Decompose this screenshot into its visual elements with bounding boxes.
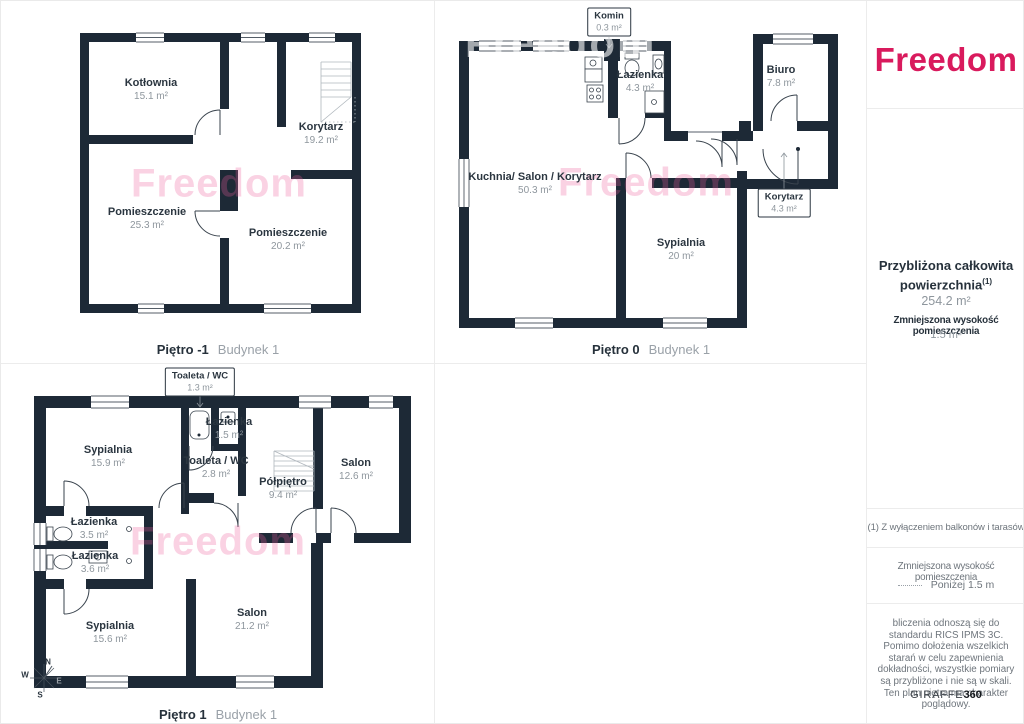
- dashed-line-sample: [898, 585, 922, 586]
- plan-caption: Piętro 1Budynek 1: [1, 706, 435, 724]
- kitchen-fixtures: [585, 57, 603, 102]
- room-label-salon-126: Salon 12.6 m²: [339, 457, 373, 483]
- sidebar-divider-line: [867, 108, 1024, 109]
- room-label-sypialnia-159: Sypialnia 15.9 m²: [84, 444, 132, 470]
- room-label-pomieszczenie-1: Pomieszczenie 25.3 m²: [108, 206, 186, 232]
- vendor-logo: GIRAFFE360: [867, 689, 1024, 701]
- room-label-toaleta-wc-1: Toaleta / WC 1.3 m²: [165, 367, 235, 396]
- room-label-lazienka-36: Łazienka 3.6 m²: [72, 550, 118, 576]
- caption-building: Budynek 1: [216, 707, 277, 722]
- compass-west-label: W: [21, 671, 29, 680]
- vendor-suffix: 360: [963, 689, 981, 701]
- compass-north-label: N: [45, 658, 51, 667]
- doors: [195, 110, 220, 236]
- plan-pietro-0: Freedom Freedom Komin 0.3 m² Łazienka 4.…: [435, 1, 867, 363]
- room-label-lazienka-35: Łazienka 3.5 m²: [71, 516, 117, 542]
- compass-rose: [30, 664, 58, 692]
- room-label-lazienka-15: Łazienka 1.5 m²: [206, 416, 252, 442]
- room-label-lazienka: Łazienka 4.3 m²: [617, 69, 663, 95]
- room-label-toaleta-wc-2: Toaleta / WC 2.8 m²: [183, 455, 248, 481]
- caption-building: Budynek 1: [649, 342, 710, 357]
- vendor-name: GIRAFFE: [910, 689, 963, 701]
- plan-caption: Piętro 0Budynek 1: [435, 341, 867, 359]
- room-label-korytarz: Korytarz 19.2 m²: [299, 121, 344, 147]
- info-sidebar: Freedom Przybliżona całkowita powierzchn…: [867, 1, 1024, 724]
- total-area-label: Przybliżona całkowita powierzchnia(1): [867, 258, 1024, 293]
- floor-plan-page: Freedom Kotłownia 15.1 m² Korytarz 19.2 …: [0, 0, 1024, 724]
- compass-east-label: E: [56, 677, 61, 686]
- total-area-value: 254.2 m²: [867, 294, 1024, 308]
- brand-logo: Freedom: [867, 41, 1024, 79]
- compass-south-label: S: [37, 691, 42, 700]
- room-label-kotlownia: Kotłownia 15.1 m²: [125, 77, 178, 103]
- sidebar-divider-line: [867, 547, 1024, 548]
- sidebar-divider-line: [867, 508, 1024, 509]
- sidebar-divider-line: [867, 603, 1024, 604]
- footnote-text: (1) Z wyłączeniem balkonów i tarasów: [867, 522, 1024, 533]
- room-label-kuchnia-salon-korytarz: Kuchnia/ Salon / Korytarz 50.3 m²: [468, 171, 601, 197]
- legend-row: Poniżej 1.5 m: [867, 579, 1024, 591]
- room-label-biuro: Biuro 7.8 m²: [767, 64, 796, 90]
- legend-value: Poniżej 1.5 m: [931, 579, 995, 591]
- reduced-height-value: 1.5 m²: [867, 329, 1024, 341]
- caption-building: Budynek 1: [218, 342, 279, 357]
- plan-pietro-minus-1: Freedom Kotłownia 15.1 m² Korytarz 19.2 …: [1, 1, 435, 363]
- plan-pietro-1: Freedom Toaleta / WC 1.3 m² Sypialnia 15…: [1, 363, 435, 724]
- floor-plan-walls: [1, 1, 435, 363]
- plan-caption: Piętro -1Budynek 1: [1, 341, 435, 359]
- caption-floor: Piętro 0: [592, 342, 640, 357]
- room-label-polpietro: Półpiętro 9.4 m²: [259, 476, 307, 502]
- caption-floor: Piętro -1: [157, 342, 209, 357]
- footnote-marker: (1): [982, 277, 992, 286]
- room-label-sypialnia: Sypialnia 20 m²: [657, 237, 705, 263]
- room-label-pomieszczenie-2: Pomieszczenie 20.2 m²: [249, 227, 327, 253]
- room-label-sypialnia-156: Sypialnia 15.6 m²: [86, 620, 134, 646]
- staircase: [321, 62, 355, 122]
- caption-floor: Piętro 1: [159, 707, 207, 722]
- room-label-korytarz-boxed: Korytarz 4.3 m²: [758, 188, 811, 217]
- room-label-salon-212: Salon 21.2 m²: [235, 607, 269, 633]
- room-label-komin: Komin 0.3 m²: [587, 7, 631, 36]
